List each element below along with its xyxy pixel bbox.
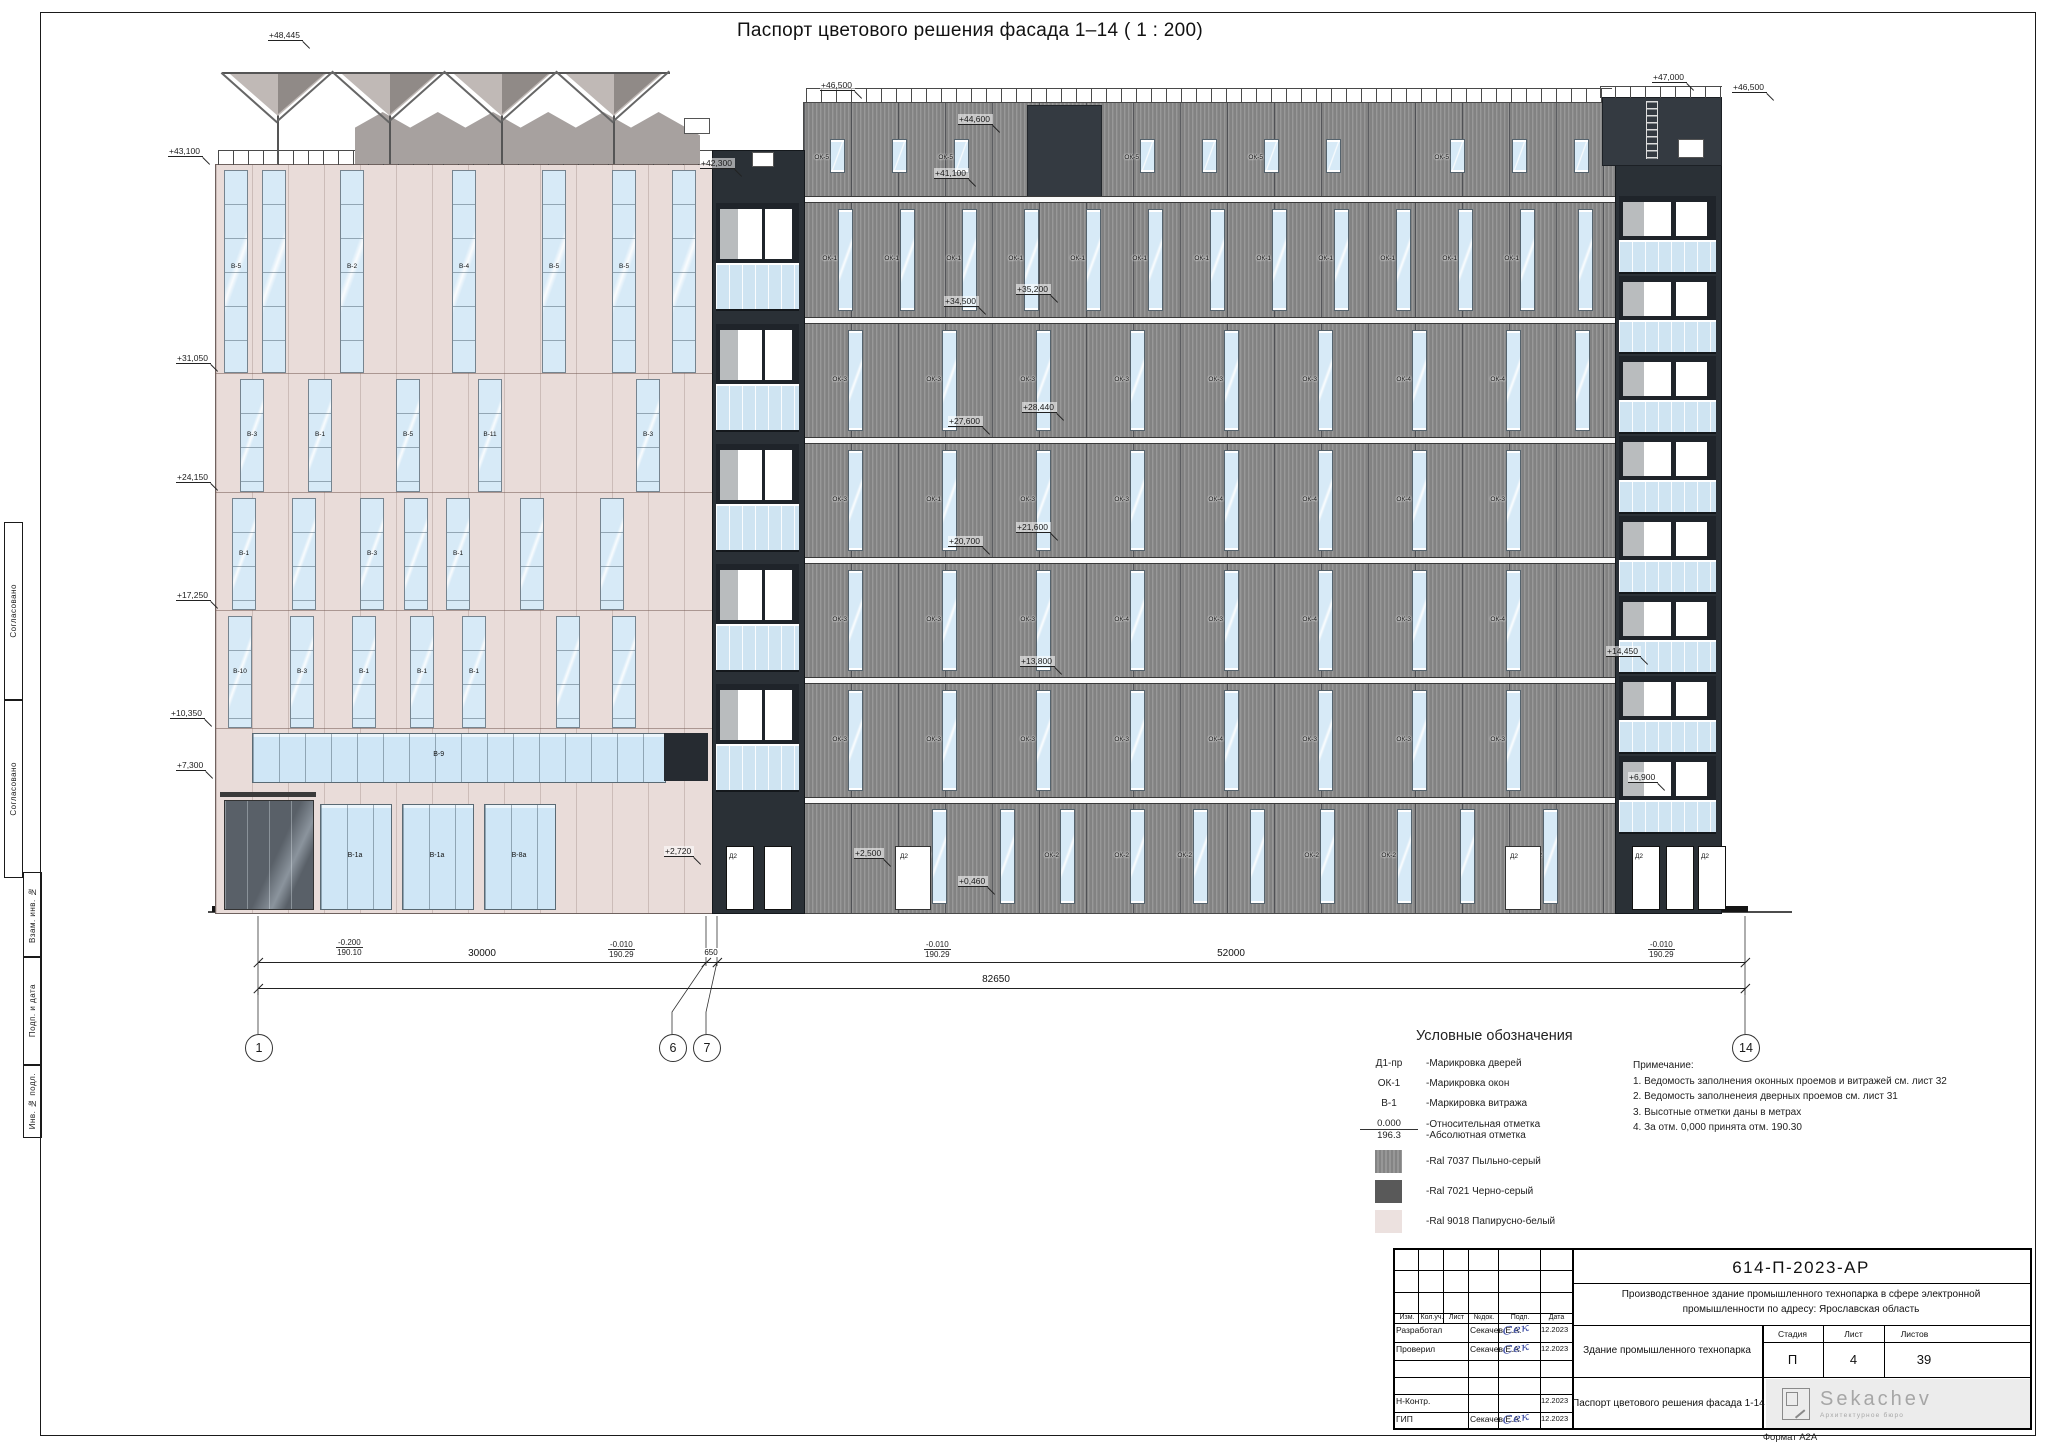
window-label: ОК-3 bbox=[1490, 496, 1507, 503]
title-block-line bbox=[1393, 1360, 1572, 1361]
elevation-value: +17,250 bbox=[176, 590, 211, 601]
dimension-label: 650 bbox=[702, 948, 719, 957]
window-label: ОК-4 bbox=[1302, 496, 1319, 503]
absolute-level: 190.29 bbox=[1649, 950, 1673, 959]
window: ОК-4 bbox=[1318, 450, 1333, 551]
balcony-door bbox=[1676, 442, 1708, 476]
balcony-door bbox=[738, 330, 762, 380]
window-label: ОК-4 bbox=[1302, 616, 1319, 623]
balcony-door bbox=[1644, 602, 1671, 636]
balcony-door bbox=[1644, 202, 1671, 236]
window-label: ОК-3 bbox=[926, 736, 943, 743]
stage-header: Лист bbox=[1823, 1329, 1884, 1339]
vitrage-label: В-5 bbox=[403, 431, 413, 438]
elevation-mark: +6,900 bbox=[1628, 772, 1658, 783]
legend-item: ОК-1-Марикровка окон bbox=[1360, 1078, 1630, 1089]
window-label: ОК-3 bbox=[926, 376, 943, 383]
vitrage-strip: В-5 bbox=[224, 170, 248, 373]
legend-desc: -Марикровка окон bbox=[1426, 1078, 1509, 1089]
note-line: 1. Ведомость заполнения оконных проемов … bbox=[1633, 1074, 2003, 1090]
balcony-railing bbox=[1619, 320, 1716, 354]
vitrage-strip bbox=[600, 498, 624, 610]
title-block-line bbox=[1393, 1270, 1572, 1271]
title-block-line bbox=[1393, 1323, 1572, 1324]
vitrage-label: В-1 bbox=[453, 550, 463, 557]
vitrage-label: В-4 bbox=[459, 263, 469, 270]
balcony-door bbox=[738, 209, 762, 259]
dimension-line bbox=[258, 988, 1745, 989]
door bbox=[764, 846, 792, 910]
row-role: Разработал bbox=[1396, 1325, 1466, 1335]
door-label: Д2 bbox=[729, 853, 737, 860]
relative-level: -0.010 bbox=[608, 940, 635, 950]
window: ОК-1 bbox=[1024, 209, 1039, 311]
window: ОК-2 bbox=[1397, 809, 1412, 904]
side-stamp-label: Согласовано bbox=[9, 762, 18, 816]
storefront-vitrage: В-1а bbox=[402, 804, 474, 910]
window-label: ОК-2 bbox=[1381, 852, 1398, 859]
window: ОК-2 bbox=[1130, 809, 1145, 904]
balcony-railing bbox=[716, 384, 799, 432]
balcony-panel bbox=[720, 450, 738, 500]
window-label: ОК-1 bbox=[822, 255, 839, 262]
balcony-door bbox=[1676, 682, 1708, 716]
level-fraction: -0.200190.10 bbox=[336, 938, 363, 957]
window-label: ОК-3 bbox=[1020, 376, 1037, 383]
elevation-mark: +27,600 bbox=[948, 416, 983, 427]
elevation-mark: +14,450 bbox=[1606, 646, 1641, 657]
window: ОК-2 bbox=[1320, 809, 1335, 904]
window-label: ОК-3 bbox=[926, 616, 943, 623]
window-label: ОК-4 bbox=[1490, 616, 1507, 623]
legend-desc: -Ral 7037 Пыльно-серый bbox=[1426, 1156, 1541, 1167]
note-line: 3. Высотные отметки даны в метрах bbox=[1633, 1105, 2003, 1121]
elevation-value: +35,200 bbox=[1016, 284, 1051, 295]
window-label: ОК-1 bbox=[946, 255, 963, 262]
vitrage-strip: В-5 bbox=[542, 170, 566, 373]
elevation-value: +21,600 bbox=[1016, 522, 1051, 533]
vitrage-strip: В-1 bbox=[352, 616, 376, 728]
vitrage-strip bbox=[556, 616, 580, 728]
elevation-mark: +28,440 bbox=[1022, 402, 1057, 413]
row-date: 12.2023 bbox=[1541, 1325, 1572, 1334]
storefront-vitrage: В-1а bbox=[320, 804, 392, 910]
window-label: ОК-3 bbox=[1302, 736, 1319, 743]
side-stamp-label: Взам. инв. № bbox=[28, 887, 37, 943]
axis-bubble: 14 bbox=[1732, 1034, 1760, 1062]
window-label: ОК-3 bbox=[1114, 496, 1131, 503]
ribbon-dark-block bbox=[664, 733, 708, 781]
format-label: Формат А2А bbox=[1640, 1432, 1940, 1443]
elevation-mark: +41,100 bbox=[934, 168, 969, 179]
logo: SekachevАрхитектурное бюро bbox=[1766, 1379, 2030, 1428]
window: ОК-5 bbox=[1264, 139, 1279, 173]
balcony-panel bbox=[1623, 522, 1644, 556]
axis-bubble: 7 bbox=[693, 1034, 721, 1062]
legend-level-symbol: 0.000196.3 bbox=[1360, 1118, 1418, 1141]
vitrage-strip: В-10 bbox=[228, 616, 252, 728]
window-label: ОК-3 bbox=[832, 736, 849, 743]
vitrage-label: В-1 bbox=[417, 668, 427, 675]
legend-key: В-1 bbox=[1360, 1098, 1418, 1109]
floor-band bbox=[803, 437, 1615, 444]
window: ОК-4 bbox=[1224, 450, 1239, 551]
roof-canopy-shade-dark bbox=[502, 74, 548, 114]
window: ОК-3 bbox=[848, 690, 863, 791]
elevation-value: +48,445 bbox=[268, 30, 303, 41]
floor-band bbox=[803, 196, 1615, 203]
window: ОК-3 bbox=[1506, 450, 1521, 551]
window-label: ОК-3 bbox=[1396, 736, 1413, 743]
window: ОК-5 bbox=[1450, 139, 1465, 173]
window: ОК-1 bbox=[1210, 209, 1225, 311]
vitrage-label: В-3 bbox=[643, 431, 653, 438]
floor-band bbox=[803, 677, 1615, 684]
entrance-glazing bbox=[224, 800, 314, 910]
balcony-door bbox=[738, 690, 762, 740]
balcony-panel bbox=[720, 330, 738, 380]
window: ОК-3 bbox=[942, 690, 957, 791]
window-label: ОК-3 bbox=[1020, 616, 1037, 623]
title-block-line bbox=[1393, 1248, 1395, 1430]
door: Д2 bbox=[1698, 846, 1726, 910]
window-label: ОК-2 bbox=[1177, 852, 1194, 859]
title-block-line bbox=[1393, 1342, 1572, 1343]
vitrage-strip bbox=[612, 616, 636, 728]
window-label: ОК-4 bbox=[1114, 616, 1131, 623]
elevation-value: +7,300 bbox=[176, 760, 206, 771]
window-label: ОК-3 bbox=[1020, 736, 1037, 743]
vitrage-label: В-2 bbox=[347, 263, 357, 270]
window bbox=[1578, 209, 1593, 311]
relative-level: -0.200 bbox=[336, 938, 363, 948]
logo-name: Sekachev bbox=[1820, 1388, 1932, 1411]
balcony-door bbox=[1676, 762, 1708, 796]
window: ОК-3 bbox=[1130, 690, 1145, 791]
legend-item: -Ral 7037 Пыльно-серый bbox=[1360, 1150, 1630, 1173]
dimension-label: 30000 bbox=[466, 948, 498, 959]
balcony-railing bbox=[716, 744, 799, 792]
vitrage-label: В-10 bbox=[233, 668, 247, 675]
balcony-door bbox=[1676, 202, 1708, 236]
legend-desc: -Ral 9018 Папирусно-белый bbox=[1426, 1216, 1555, 1227]
pink-floor-line bbox=[215, 728, 712, 729]
balcony-panel bbox=[1623, 202, 1644, 236]
elevation-mark: +2,500 bbox=[854, 848, 884, 859]
window-label: ОК-1 bbox=[926, 496, 943, 503]
legend-desc: -Ral 7021 Черно-серый bbox=[1426, 1186, 1533, 1197]
vitrage-strip: В-3 bbox=[240, 379, 264, 492]
project-description: промышленности по адресу: Ярославская об… bbox=[1580, 1304, 2022, 1315]
balcony-door bbox=[765, 330, 792, 380]
vitrage-strip: В-1 bbox=[446, 498, 470, 610]
elevation-mark: +2,720 bbox=[664, 846, 694, 857]
window: ОК-3 bbox=[1036, 450, 1051, 551]
elevation-value: +24,150 bbox=[176, 472, 211, 483]
window bbox=[892, 139, 907, 173]
roof-canopy-shade-dark bbox=[278, 74, 324, 114]
vitrage-label: В-9 bbox=[433, 751, 444, 758]
window: ОК-1 bbox=[1520, 209, 1535, 311]
window: ОК-3 bbox=[1130, 450, 1145, 551]
elevation-mark: +10,350 bbox=[170, 708, 205, 719]
column-header: Дата bbox=[1541, 1314, 1572, 1321]
door: Д2 bbox=[1632, 846, 1660, 910]
balcony-door bbox=[1644, 282, 1671, 316]
balcony-panel bbox=[1623, 442, 1644, 476]
title-block-line bbox=[1572, 1377, 2030, 1378]
title-block-line bbox=[1443, 1248, 1444, 1323]
legend-key: Д1-пр bbox=[1360, 1058, 1418, 1069]
elevation-mark: +0,460 bbox=[958, 876, 988, 887]
vitrage-strip: В-11 bbox=[478, 379, 502, 492]
roof-slab bbox=[1027, 105, 1102, 198]
vitrage-strip bbox=[520, 498, 544, 610]
absolute-level: 190.29 bbox=[925, 950, 949, 959]
window bbox=[1512, 139, 1527, 173]
balcony-panel bbox=[720, 209, 738, 259]
window bbox=[1574, 139, 1589, 173]
window-label: ОК-5 bbox=[1124, 154, 1141, 161]
side-stamp-label: Инв. № подл. bbox=[28, 1073, 37, 1129]
window: ОК-1 bbox=[1458, 209, 1473, 311]
pink-floor-line bbox=[215, 373, 712, 374]
window: ОК-1 bbox=[900, 209, 915, 311]
notes: Примечание:1. Ведомость заполнения оконн… bbox=[1633, 1058, 2003, 1136]
window: ОК-2 bbox=[1543, 809, 1558, 904]
window: ОК-2 bbox=[1193, 809, 1208, 904]
elevation-mark: +42,300 bbox=[700, 158, 735, 169]
project-description: Производственное здание промышленного те… bbox=[1580, 1289, 2022, 1300]
vitrage-label: В-8а bbox=[512, 852, 527, 859]
window: ОК-3 bbox=[848, 570, 863, 671]
elevation-mark: +48,445 bbox=[268, 30, 303, 41]
window: ОК-4 bbox=[1506, 570, 1521, 671]
level-fraction: -0.010190.29 bbox=[608, 940, 635, 959]
window bbox=[1202, 139, 1217, 173]
vitrage-strip: В-5 bbox=[612, 170, 636, 373]
window-label: ОК-3 bbox=[832, 616, 849, 623]
balcony-railing bbox=[1619, 560, 1716, 594]
window-label: ОК-1 bbox=[1442, 255, 1459, 262]
side-stamp-label: Согласовано bbox=[9, 584, 18, 638]
level-fraction: -0.010190.29 bbox=[924, 940, 951, 959]
balcony-railing bbox=[1619, 720, 1716, 754]
sheet-number: 4 bbox=[1823, 1352, 1884, 1367]
window: ОК-4 bbox=[1130, 570, 1145, 671]
vitrage-label: В-11 bbox=[483, 431, 496, 438]
window: ОК-2 bbox=[932, 809, 947, 904]
sheet-name: Паспорт цветового решения фасада 1-14 bbox=[1572, 1398, 1762, 1409]
balcony-door bbox=[738, 450, 762, 500]
window: ОК-3 bbox=[848, 330, 863, 431]
title-block-line bbox=[1762, 1342, 2030, 1343]
vitrage-label: В-1 bbox=[315, 431, 325, 438]
window: ОК-4 bbox=[1412, 330, 1427, 431]
title-block-line bbox=[2030, 1248, 2032, 1430]
balcony-door bbox=[765, 450, 792, 500]
door-label: Д2 bbox=[1510, 853, 1518, 860]
window-label: ОК-3 bbox=[832, 376, 849, 383]
row-date: 12.2023 bbox=[1541, 1344, 1572, 1353]
balcony-railing bbox=[1619, 480, 1716, 514]
legend-desc: -Относительная отметка-Абсолютная отметк… bbox=[1426, 1119, 1540, 1141]
roof-tower bbox=[1602, 97, 1722, 166]
side-stamp-box: Инв. № подл. bbox=[23, 1064, 42, 1138]
row-date: 12.2023 bbox=[1541, 1414, 1572, 1423]
tower-door bbox=[1678, 139, 1704, 158]
balcony-door bbox=[1676, 602, 1708, 636]
door bbox=[1666, 846, 1694, 910]
elevation-value: +43,100 bbox=[168, 146, 203, 157]
legend-item: Д1-пр-Марикровка дверей bbox=[1360, 1058, 1630, 1069]
absolute-level: 190.29 bbox=[609, 950, 633, 959]
elevation-mark: +21,600 bbox=[1016, 522, 1051, 533]
title-block-line bbox=[1498, 1248, 1499, 1323]
legend-items: Д1-пр-Марикровка дверейОК-1-Марикровка о… bbox=[1360, 1058, 1630, 1233]
vitrage-label: В-5 bbox=[619, 263, 629, 270]
balcony-railing bbox=[1619, 240, 1716, 274]
window bbox=[1250, 809, 1265, 904]
door: Д2 bbox=[895, 846, 931, 910]
vitrage-strip: В-4 bbox=[452, 170, 476, 373]
vitrage-strip bbox=[292, 498, 316, 610]
vitrage-strip: В-1 bbox=[232, 498, 256, 610]
document-number: 614-П-2023-АР bbox=[1572, 1258, 2030, 1278]
balcony-panel bbox=[720, 570, 738, 620]
title-block-line bbox=[1468, 1248, 1469, 1323]
color-swatch bbox=[1375, 1150, 1402, 1173]
elevation-value: +20,700 bbox=[948, 536, 983, 547]
window-label: ОК-1 bbox=[1008, 255, 1025, 262]
note-line: 2. Ведомость заполненеия дверных проемов… bbox=[1633, 1089, 2003, 1105]
window-label: ОК-1 bbox=[1194, 255, 1211, 262]
roof-canopy-shade-dark bbox=[390, 74, 436, 114]
window: ОК-3 bbox=[1318, 690, 1333, 791]
balcony-panel bbox=[1623, 362, 1644, 396]
side-stamp-box: Подп. и дата bbox=[23, 956, 42, 1066]
window-label: ОК-2 bbox=[1114, 852, 1131, 859]
window-label: ОК-1 bbox=[1132, 255, 1149, 262]
title-block-line bbox=[1762, 1325, 1764, 1428]
window: ОК-5 bbox=[1140, 139, 1155, 173]
window-label: ОК-2 bbox=[1044, 852, 1061, 859]
window-label: ОК-5 bbox=[814, 154, 831, 161]
window: ОК-4 bbox=[1412, 450, 1427, 551]
balcony-railing bbox=[1619, 400, 1716, 434]
elevation-value: +13,800 bbox=[1020, 656, 1055, 667]
vitrage-strip bbox=[404, 498, 428, 610]
elevation-mark: +46,500 bbox=[820, 80, 855, 91]
window-label: ОК-5 bbox=[1248, 154, 1265, 161]
vitrage-label: В-3 bbox=[247, 431, 257, 438]
window: ОК-4 bbox=[1224, 690, 1239, 791]
side-stamp-label: Подп. и дата bbox=[28, 984, 37, 1037]
vitrage-label: В-1а bbox=[430, 852, 445, 859]
legend: Условные обозначения Д1-пр-Марикровка дв… bbox=[1360, 1028, 1630, 1240]
elevation-value: +10,350 bbox=[170, 708, 205, 719]
window: ОК-1 bbox=[1148, 209, 1163, 311]
color-swatch bbox=[1375, 1180, 1402, 1203]
storefront-vitrage: В-8а bbox=[484, 804, 556, 910]
stage-header: Стадия bbox=[1762, 1329, 1823, 1339]
vitrage-label: В-3 bbox=[297, 668, 307, 675]
balcony-railing bbox=[716, 504, 799, 552]
vitrage-label: В-1 bbox=[239, 550, 249, 557]
note-line: Примечание: bbox=[1633, 1058, 2003, 1074]
elevation-value: +28,440 bbox=[1022, 402, 1057, 413]
window-label: ОК-1 bbox=[1380, 255, 1397, 262]
row-date: 12.2023 bbox=[1541, 1396, 1572, 1405]
legend-key: ОК-1 bbox=[1360, 1078, 1418, 1089]
elevation-mark: +13,800 bbox=[1020, 656, 1055, 667]
elevation-value: +47,000 bbox=[1652, 72, 1687, 83]
window: ОК-5 bbox=[830, 139, 845, 173]
legend-desc: -Марикровка дверей bbox=[1426, 1058, 1522, 1069]
roof-canopy-shade-dark bbox=[614, 74, 660, 114]
window-label: ОК-3 bbox=[1208, 616, 1225, 623]
logo-icon bbox=[1782, 1388, 1810, 1420]
window: ОК-3 bbox=[848, 450, 863, 551]
elevation-value: +46,500 bbox=[1732, 82, 1767, 93]
legend-title: Условные обозначения bbox=[1416, 1028, 1630, 1044]
window: ОК-1 bbox=[838, 209, 853, 311]
elevation-mark: +43,100 bbox=[168, 146, 203, 157]
window: ОК-1 bbox=[1272, 209, 1287, 311]
vitrage-strip: В-2 bbox=[340, 170, 364, 373]
balcony-door bbox=[1644, 682, 1671, 716]
balcony-door bbox=[1644, 442, 1671, 476]
window-label: ОК-4 bbox=[1396, 496, 1413, 503]
stage-value: П bbox=[1762, 1352, 1823, 1367]
elevation-mark: +35,200 bbox=[1016, 284, 1051, 295]
side-stamp-box: Согласовано bbox=[4, 522, 23, 700]
window: ОК-3 bbox=[1318, 330, 1333, 431]
window-label: ОК-1 bbox=[884, 255, 901, 262]
vitrage-strip: В-5 bbox=[396, 379, 420, 492]
elevation-mark: +31,050 bbox=[176, 353, 211, 364]
balcony-railing bbox=[716, 624, 799, 672]
legend-item: В-1-Маркировка витража bbox=[1360, 1098, 1630, 1109]
vitrage-label: В-1а bbox=[348, 852, 363, 859]
window: ОК-3 bbox=[942, 570, 957, 671]
window bbox=[1326, 139, 1341, 173]
tower-railing bbox=[1600, 86, 1722, 98]
title-block-line bbox=[1393, 1428, 2032, 1430]
dimension-label: 52000 bbox=[1215, 948, 1247, 959]
window-label: ОК-3 bbox=[832, 496, 849, 503]
side-stamp-box: Согласовано bbox=[4, 700, 23, 878]
vitrage-label: В-1 bbox=[359, 668, 369, 675]
window-label: ОК-3 bbox=[1490, 736, 1507, 743]
balcony-panel bbox=[1623, 602, 1644, 636]
window bbox=[1460, 809, 1475, 904]
drawing-sheet: Паспорт цветового решения фасада 1–14 ( … bbox=[0, 0, 2048, 1448]
balcony-panel bbox=[1623, 282, 1644, 316]
elevation-value: +2,500 bbox=[854, 848, 884, 859]
window-label: ОК-3 bbox=[1302, 376, 1319, 383]
door-label: Д2 bbox=[1635, 853, 1643, 860]
penthouse-door bbox=[684, 118, 710, 134]
title-block-line bbox=[1418, 1248, 1419, 1323]
window: ОК-2 bbox=[1060, 809, 1075, 904]
vitrage-ribbon bbox=[252, 733, 666, 783]
elevation-mark: +46,500 bbox=[1732, 82, 1767, 93]
window-label: ОК-3 bbox=[1020, 496, 1037, 503]
balcony-door bbox=[1644, 522, 1671, 556]
window bbox=[1575, 330, 1590, 431]
title-block-line bbox=[1393, 1377, 1572, 1378]
